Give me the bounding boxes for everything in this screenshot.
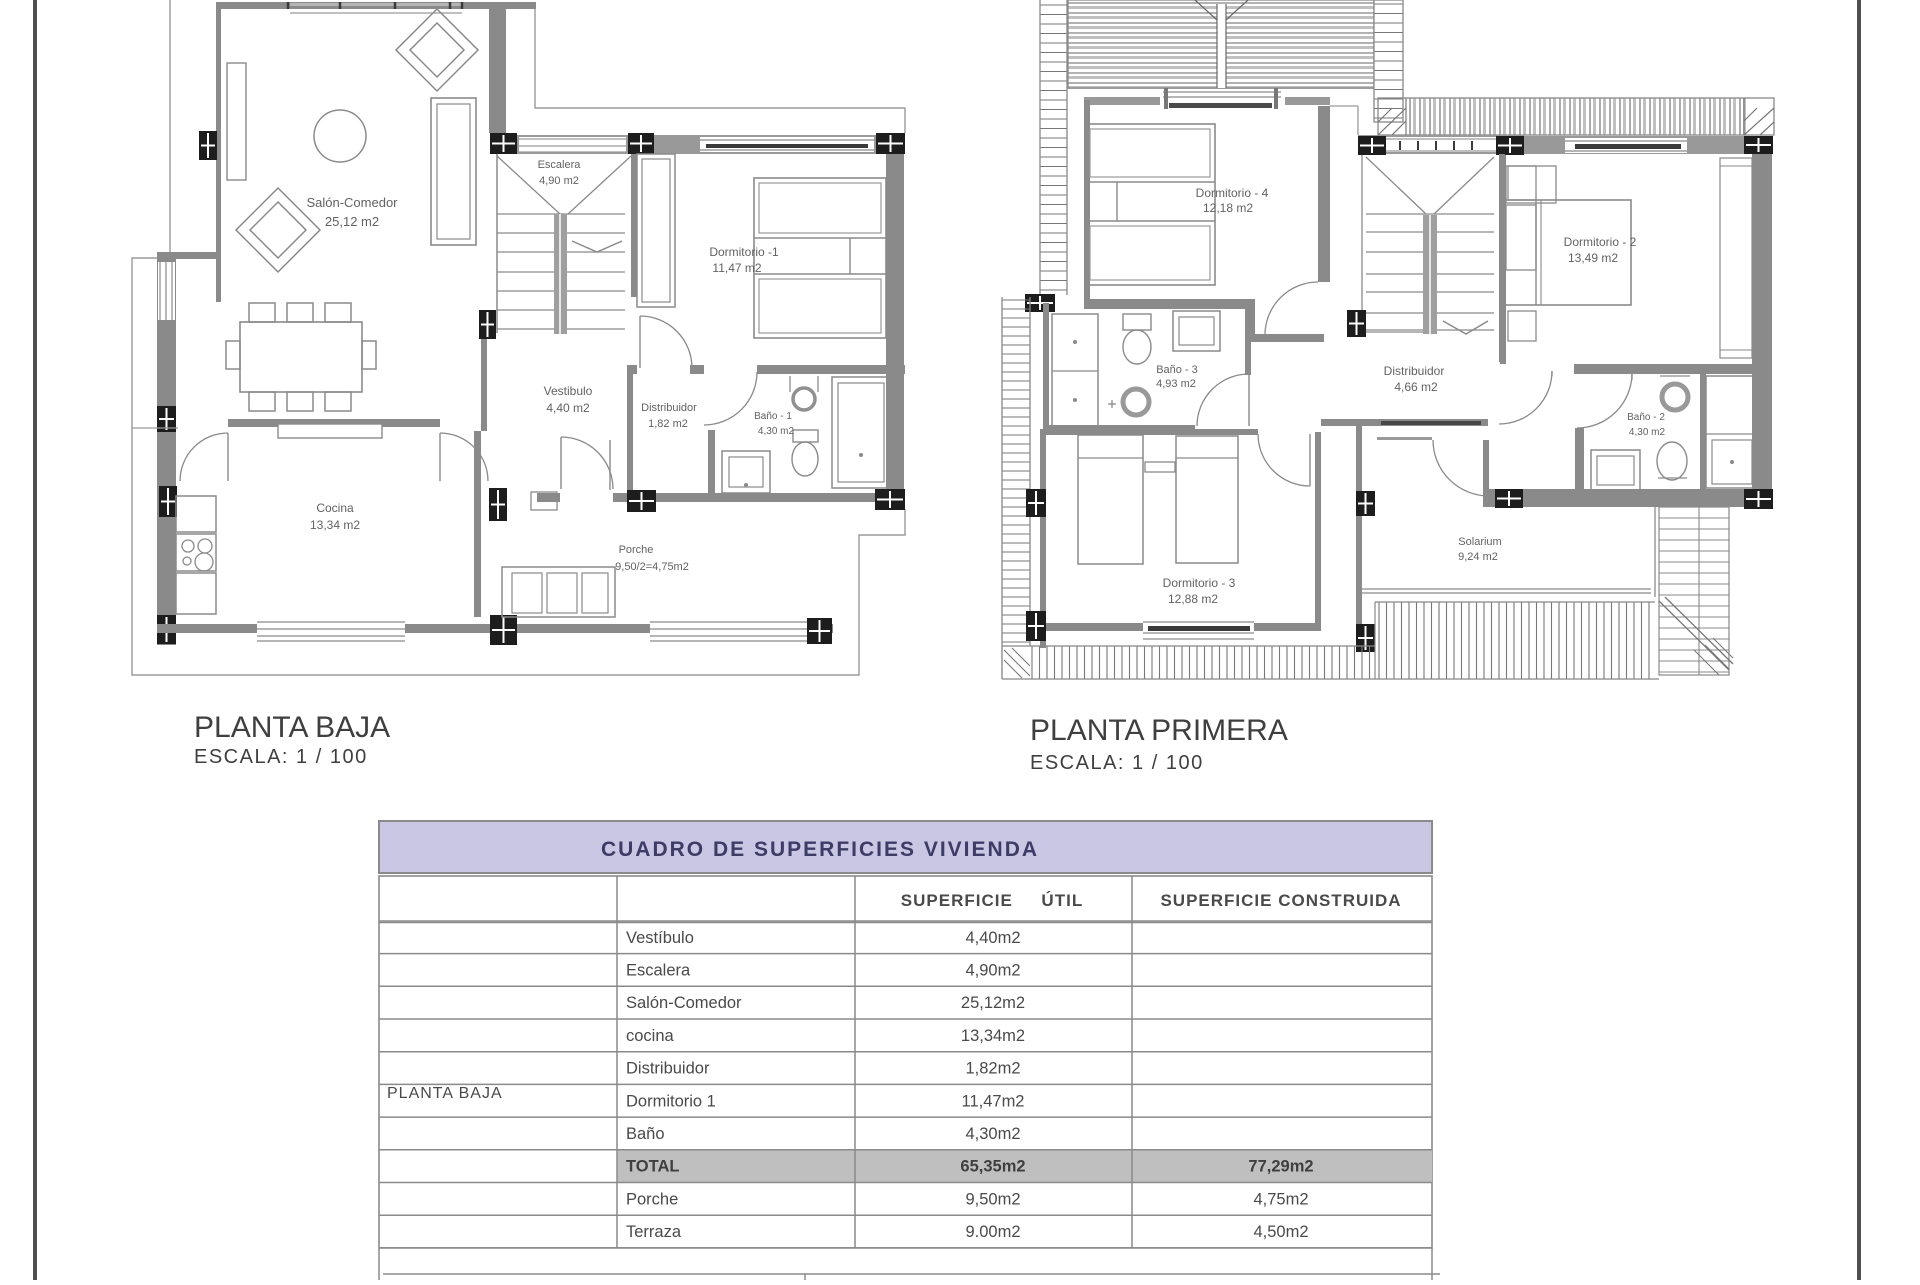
svg-text:25,12m2: 25,12m2 <box>961 994 1025 1012</box>
svg-text:ESCALA: 1 / 100: ESCALA: 1 / 100 <box>194 746 368 768</box>
svg-text:Dormitorio - 4: Dormitorio - 4 <box>1196 186 1269 200</box>
svg-text:4,50m2: 4,50m2 <box>1253 1223 1308 1241</box>
svg-text:12,18 m2: 12,18 m2 <box>1203 201 1253 215</box>
svg-text:Escalera: Escalera <box>626 961 691 979</box>
svg-text:Distribuidor: Distribuidor <box>1384 364 1445 378</box>
svg-text:4,30 m2: 4,30 m2 <box>758 426 795 437</box>
svg-text:4,93 m2: 4,93 m2 <box>1156 378 1196 390</box>
svg-text:9,24 m2: 9,24 m2 <box>1458 551 1498 563</box>
svg-text:Dormitorio - 2: Dormitorio - 2 <box>1564 235 1637 249</box>
svg-text:Escalera: Escalera <box>538 159 582 171</box>
svg-text:Baño - 2: Baño - 2 <box>1627 412 1665 423</box>
svg-text:Dormitorio -1: Dormitorio -1 <box>709 245 779 259</box>
svg-text:TOTAL: TOTAL <box>626 1158 679 1176</box>
svg-text:Dormitorio - 3: Dormitorio - 3 <box>1163 576 1236 590</box>
svg-text:SUPERFICIE CONSTRUIDA: SUPERFICIE CONSTRUIDA <box>1160 891 1401 910</box>
svg-text:4,90 m2: 4,90 m2 <box>539 175 579 187</box>
svg-text:PLANTA PRIMERA: PLANTA PRIMERA <box>1030 714 1288 747</box>
svg-text:4,40 m2: 4,40 m2 <box>546 401 590 415</box>
svg-text:4,30m2: 4,30m2 <box>965 1125 1020 1143</box>
svg-text:Cocina: Cocina <box>316 501 354 515</box>
svg-text:cocina: cocina <box>626 1027 675 1045</box>
svg-text:PLANTA BAJA: PLANTA BAJA <box>194 711 390 744</box>
svg-text:13,49 m2: 13,49 m2 <box>1568 251 1618 265</box>
svg-text:PLANTA BAJA: PLANTA BAJA <box>387 1085 503 1102</box>
svg-text:1,82 m2: 1,82 m2 <box>648 418 688 430</box>
svg-text:Vestíbulo: Vestíbulo <box>626 929 694 947</box>
svg-text:9,50m2: 9,50m2 <box>965 1190 1020 1208</box>
svg-text:77,29m2: 77,29m2 <box>1248 1158 1313 1176</box>
svg-text:Vestibulo: Vestibulo <box>544 384 593 398</box>
svg-text:Porche: Porche <box>619 544 654 556</box>
svg-text:Dormitorio 1: Dormitorio 1 <box>626 1092 716 1110</box>
svg-text:4,40m2: 4,40m2 <box>965 929 1020 947</box>
svg-text:13,34 m2: 13,34 m2 <box>310 518 360 532</box>
svg-text:9,50/2=4,75m2: 9,50/2=4,75m2 <box>615 561 689 573</box>
svg-text:Distribuidor: Distribuidor <box>626 1060 710 1078</box>
svg-text:Solarium: Solarium <box>1458 536 1501 548</box>
svg-text:11,47m2: 11,47m2 <box>962 1092 1025 1110</box>
svg-text:11,47 m2: 11,47 m2 <box>712 261 761 275</box>
svg-text:13,34m2: 13,34m2 <box>961 1027 1025 1045</box>
svg-text:Salón-Comedor: Salón-Comedor <box>626 994 742 1012</box>
svg-text:9.00m2: 9.00m2 <box>965 1223 1020 1241</box>
svg-text:ESCALA: 1 / 100: ESCALA: 1 / 100 <box>1030 752 1204 774</box>
svg-text:1,82m2: 1,82m2 <box>965 1060 1020 1078</box>
svg-text:4,30 m2: 4,30 m2 <box>1629 427 1666 438</box>
svg-text:4,75m2: 4,75m2 <box>1253 1190 1308 1208</box>
svg-text:Baño - 1: Baño - 1 <box>754 411 792 422</box>
svg-text:Terraza: Terraza <box>626 1223 682 1241</box>
svg-text:12,88 m2: 12,88 m2 <box>1168 592 1218 606</box>
svg-text:Baño - 3: Baño - 3 <box>1156 364 1198 376</box>
svg-text:65,35m2: 65,35m2 <box>960 1158 1025 1176</box>
svg-text:SUPERFICIE ÚTIL: SUPERFICIE ÚTIL <box>901 891 1083 910</box>
svg-text:25,12 m2: 25,12 m2 <box>325 214 379 229</box>
svg-text:4,66 m2: 4,66 m2 <box>1394 380 1438 394</box>
svg-text:4,90m2: 4,90m2 <box>965 961 1020 979</box>
svg-text:Porche: Porche <box>626 1190 678 1208</box>
svg-text:CUADRO DE SUPERFICIES VIVIEND: CUADRO DE SUPERFICIES VIVIENDA <box>601 838 1039 861</box>
svg-text:Baño: Baño <box>626 1125 665 1143</box>
svg-text:Distribuidor: Distribuidor <box>641 402 697 414</box>
svg-text:Salón-Comedor: Salón-Comedor <box>306 195 398 210</box>
